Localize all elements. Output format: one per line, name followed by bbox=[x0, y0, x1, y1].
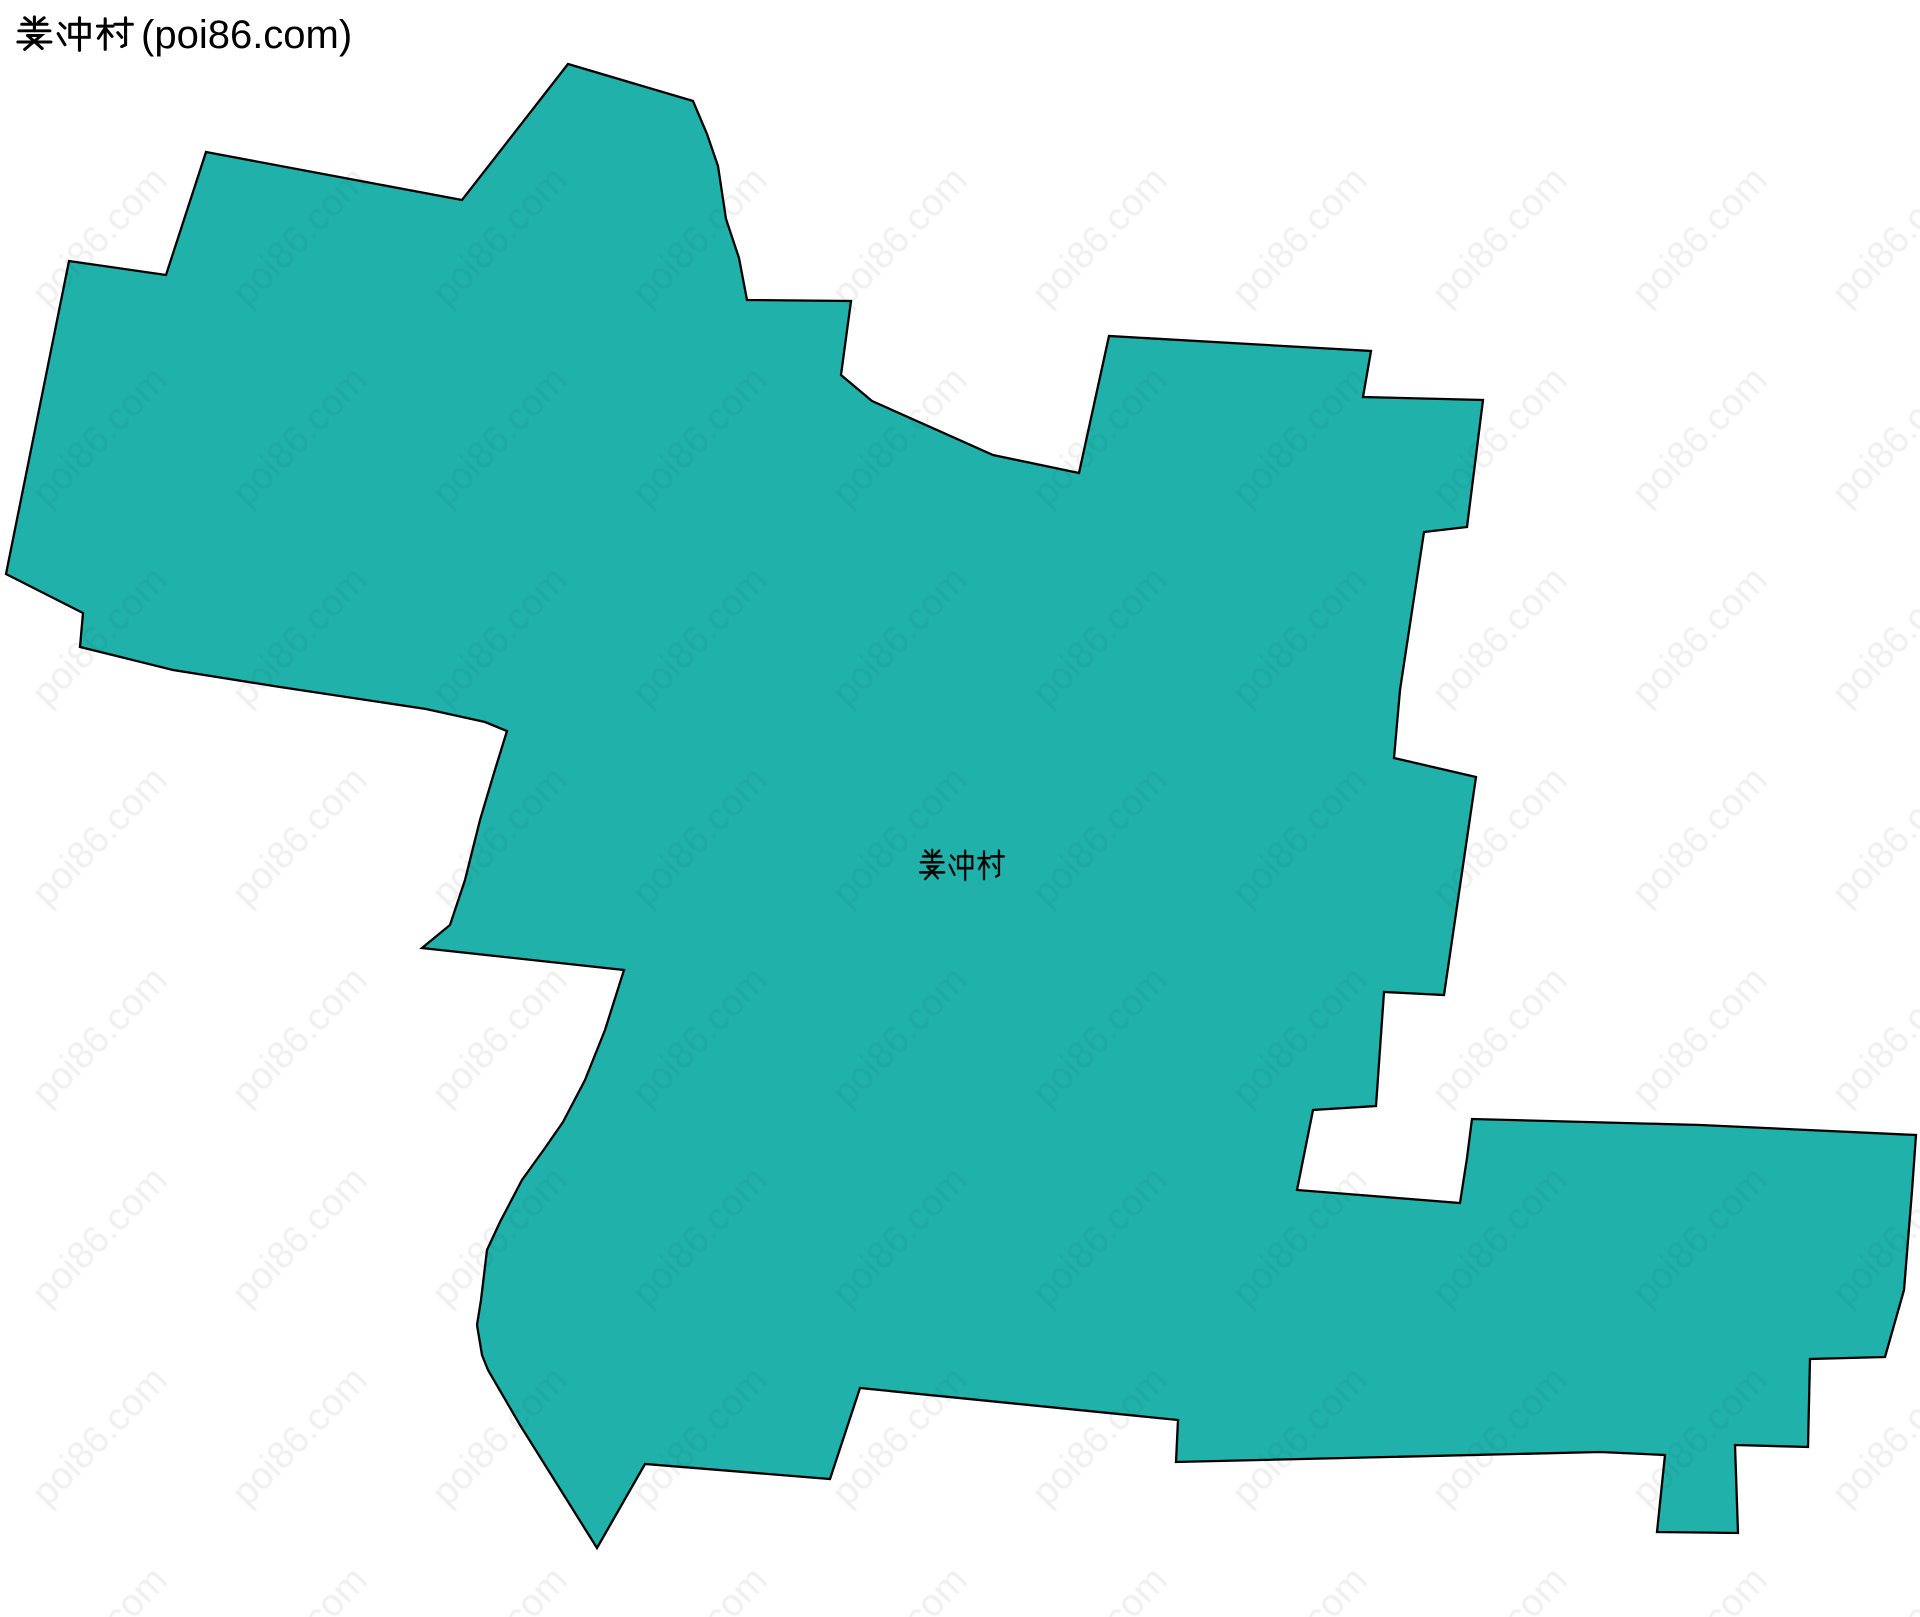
svg-text:(poi86.com): (poi86.com) bbox=[141, 13, 352, 57]
